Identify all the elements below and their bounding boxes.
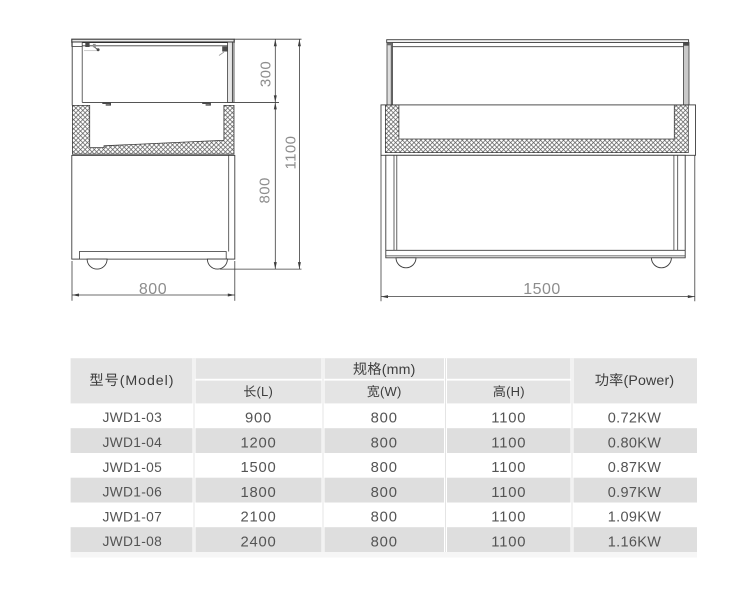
svg-text:0.87KW: 0.87KW (608, 460, 661, 476)
svg-text:(mm): (mm) (382, 362, 416, 378)
svg-text:900: 900 (245, 411, 272, 427)
svg-text:800: 800 (139, 281, 167, 298)
svg-text:1100: 1100 (283, 136, 300, 170)
svg-text:(H): (H) (506, 384, 525, 399)
svg-text:800: 800 (371, 460, 398, 476)
svg-text:1200: 1200 (240, 435, 276, 451)
svg-text:800: 800 (371, 435, 398, 451)
svg-text:(L): (L) (257, 384, 274, 399)
svg-text:1.16KW: 1.16KW (608, 534, 661, 550)
svg-text:300: 300 (257, 61, 274, 87)
svg-text:1100: 1100 (491, 485, 526, 501)
svg-text:1100: 1100 (491, 534, 526, 550)
svg-text:1100: 1100 (491, 435, 526, 451)
svg-text:JWD1-07: JWD1-07 (102, 509, 162, 524)
svg-text:0.72KW: 0.72KW (608, 411, 661, 427)
svg-text:1.09KW: 1.09KW (608, 510, 661, 526)
svg-text:JWD1-05: JWD1-05 (102, 460, 162, 475)
svg-text:800: 800 (371, 534, 398, 550)
svg-text:0.97KW: 0.97KW (608, 485, 661, 501)
svg-text:1100: 1100 (491, 510, 526, 526)
svg-text:0.80KW: 0.80KW (608, 435, 661, 451)
svg-text:1500: 1500 (523, 281, 561, 298)
svg-text:800: 800 (371, 510, 398, 526)
svg-text:JWD1-04: JWD1-04 (102, 435, 162, 450)
svg-text:2400: 2400 (240, 534, 276, 550)
svg-text:1100: 1100 (491, 411, 526, 427)
svg-text:800: 800 (371, 411, 398, 427)
svg-text:JWD1-03: JWD1-03 (102, 410, 162, 425)
svg-text:1100: 1100 (491, 460, 526, 476)
svg-text:800: 800 (256, 177, 273, 203)
svg-text:(W): (W) (380, 384, 402, 399)
svg-text:(Power): (Power) (624, 373, 675, 389)
svg-text:JWD1-06: JWD1-06 (102, 485, 162, 500)
svg-text:2100: 2100 (240, 510, 276, 526)
svg-text:1500: 1500 (240, 460, 276, 476)
svg-text:JWD1-08: JWD1-08 (102, 534, 162, 549)
svg-text:800: 800 (371, 485, 398, 501)
svg-text:(Model): (Model) (120, 373, 175, 389)
svg-text:1800: 1800 (240, 485, 276, 501)
